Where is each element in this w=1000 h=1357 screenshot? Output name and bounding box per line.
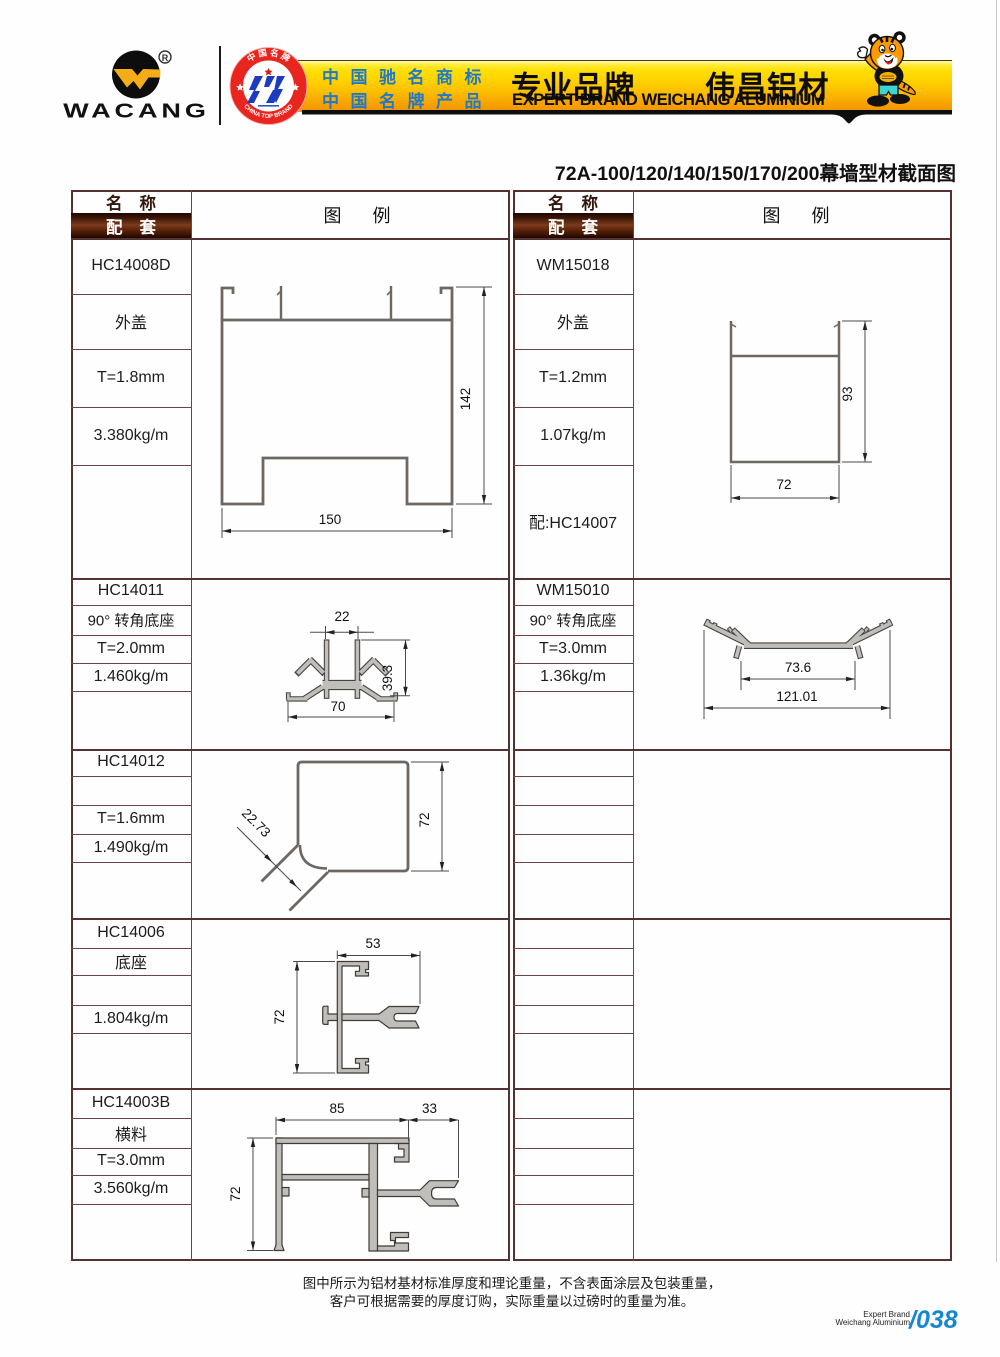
svg-text:73.6: 73.6 [785, 660, 811, 675]
svg-text:33: 33 [422, 1101, 437, 1116]
svg-text:72: 72 [776, 477, 791, 492]
svg-text:72: 72 [228, 1186, 243, 1201]
svg-text:22.73: 22.73 [239, 806, 274, 841]
svg-text:142: 142 [458, 388, 473, 411]
svg-text:72: 72 [417, 812, 432, 827]
svg-text:85: 85 [329, 1101, 344, 1116]
svg-text:53: 53 [365, 936, 380, 951]
svg-text:22: 22 [334, 609, 349, 624]
svg-text:39.3: 39.3 [380, 665, 395, 691]
svg-text:70: 70 [330, 699, 345, 714]
svg-text:93: 93 [840, 386, 855, 401]
svg-text:150: 150 [319, 512, 342, 527]
svg-text:121.01: 121.01 [776, 689, 817, 704]
svg-text:72: 72 [272, 1009, 287, 1024]
